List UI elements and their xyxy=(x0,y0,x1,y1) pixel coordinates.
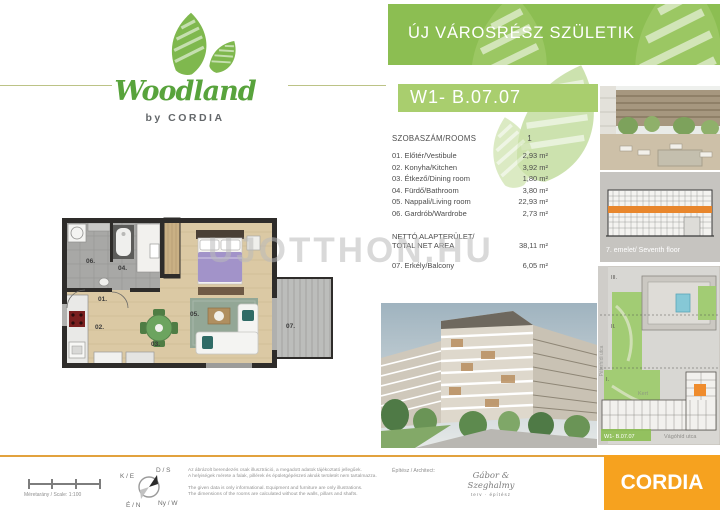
disclaimer-hu-1: Az ábrázolt berendezés csak illusztráció… xyxy=(188,468,362,473)
room-label-01: 01. xyxy=(98,296,107,303)
table-row: 05. Nappali/Living room22,93 m² xyxy=(392,198,548,206)
compass-south-label: D / S xyxy=(156,467,171,474)
footer-divider xyxy=(0,455,604,457)
floor-locator-panel: 7. emelet/ Seventh floor xyxy=(600,172,720,262)
garden-label: Kert xyxy=(638,391,649,397)
woodland-logo: Woodland xyxy=(95,76,275,107)
balcony xyxy=(277,278,332,358)
zone-label-II: II. xyxy=(611,324,616,330)
room-label-02: 02. xyxy=(95,324,104,331)
compass-north-label: É / N xyxy=(126,500,141,508)
page-title: ÚJ VÁROSRÉSZ SZÜLETIK xyxy=(408,24,635,43)
table-row: 06. Gardrób/Wardrobe2,73 m² xyxy=(392,210,548,218)
room-label-06: 06. xyxy=(86,258,95,265)
window xyxy=(62,304,67,326)
coffee-table xyxy=(208,308,230,324)
room-label-05: 05. xyxy=(190,311,199,318)
room-label-07: 07. xyxy=(286,323,295,330)
table-row: 04. Fürdő/Bathroom3,80 m² xyxy=(392,187,548,195)
disclaimer-en-1: The given data is only informational. Eq… xyxy=(188,486,362,491)
architect-logo: Gábor & Szeghalmy terv · építész xyxy=(452,471,530,497)
woodland-byline: by CORDIA xyxy=(95,112,275,124)
disclaimer-en-2: The dimensions of the rooms are calculat… xyxy=(188,492,358,497)
divider xyxy=(288,85,386,86)
upper-building xyxy=(642,276,716,330)
brochure-page: ÚJ VÁROSRÉSZ SZÜLETIK W1- B.07.07 Woodla… xyxy=(0,0,720,510)
pool-pit xyxy=(658,150,702,166)
sink xyxy=(99,278,109,286)
table-row: 03. Étkező/Dining room1,80 m² xyxy=(392,175,548,183)
header-banner: ÚJ VÁROSRÉSZ SZÜLETIK xyxy=(388,4,720,65)
disclaimer-hu-2: A helyiségek mérete a falak, pillérek és… xyxy=(188,474,377,479)
compass-east-label: K / E xyxy=(120,473,135,480)
pool xyxy=(676,294,690,312)
table-row: 02. Konyha/Kitchen3,92 m² xyxy=(392,164,548,172)
map-unit-badge-label: W1- B.07.07 xyxy=(604,434,635,440)
room-table-header: SZOBASZÁM/ROOMS 1 xyxy=(392,134,548,143)
floor-caption: 7. emelet/ Seventh floor xyxy=(606,247,681,254)
room-label-03: 03. xyxy=(151,341,160,348)
bed-bench xyxy=(198,287,244,295)
disclaimer-text: Az ábrázolt berendezés csak illusztráció… xyxy=(188,468,386,504)
cooktop xyxy=(69,311,85,327)
rooms-count: 1 xyxy=(527,134,548,143)
architect-label: Építész / Architect: xyxy=(392,468,435,474)
zone-label-III: III. xyxy=(611,275,618,281)
site-map: Péterhídi utca Kert III. II. I. xyxy=(598,266,720,445)
architect-name: Gábor & Szeghalmy xyxy=(452,471,530,491)
net-area-value: 38,11 m² xyxy=(506,241,548,250)
compass-west-label: Ny / W xyxy=(158,500,178,507)
compass-icon: D / S K / E É / N Ny / W xyxy=(112,462,190,508)
shelf xyxy=(88,223,110,231)
toilet xyxy=(150,244,159,258)
highlighted-unit xyxy=(694,384,706,396)
table-row: 01. Előtér/Vestibule2,93 m² xyxy=(392,152,548,160)
cordia-logo: CORDIA xyxy=(621,471,704,495)
zone-label-I: I. xyxy=(606,377,610,383)
watermark: UJOTTHON.HU xyxy=(208,231,494,271)
scale-label: Méretarány / Scale: 1:100 xyxy=(24,492,114,498)
cordia-logo-block: CORDIA xyxy=(604,455,720,510)
street-bottom-label: Vágóhíd utca xyxy=(664,434,697,440)
rooms-header-label: SZOBASZÁM/ROOMS xyxy=(392,134,476,143)
highlighted-floor-band xyxy=(608,206,712,213)
building-render-image xyxy=(381,303,597,448)
courtyard-render-image xyxy=(600,86,720,170)
room-label-04: 04. xyxy=(118,265,127,272)
architect-subtitle: terv · építész xyxy=(452,492,530,497)
unit-code-box: W1- B.07.07 xyxy=(398,84,598,112)
unit-code: W1- B.07.07 xyxy=(410,87,521,108)
balcony-door xyxy=(272,298,277,350)
window xyxy=(206,363,252,368)
woodland-leaves-icon xyxy=(158,12,258,78)
